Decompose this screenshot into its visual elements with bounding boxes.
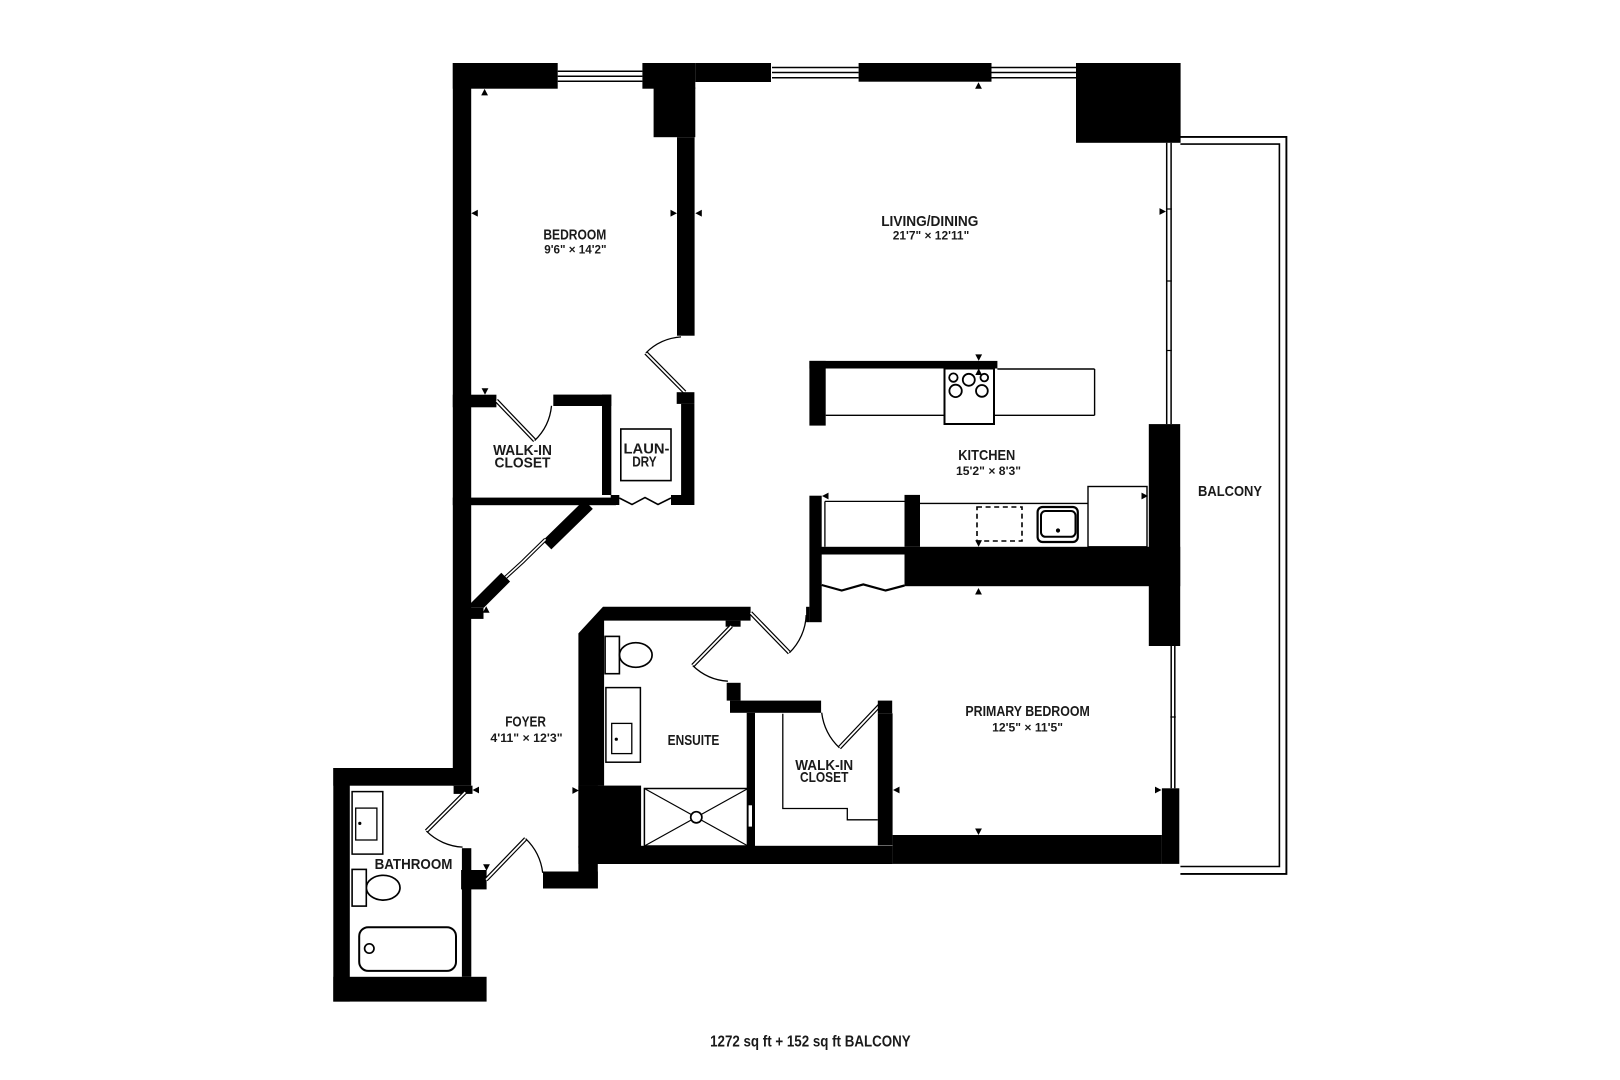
svg-text:BALCONY: BALCONY (1198, 483, 1262, 500)
svg-text:15'2" × 8'3": 15'2" × 8'3" (956, 464, 1021, 478)
svg-text:BATHROOM: BATHROOM (375, 856, 453, 873)
svg-text:4'11" × 12'3": 4'11" × 12'3" (490, 731, 562, 745)
svg-text:12'5" × 11'5": 12'5" × 11'5" (992, 721, 1063, 735)
svg-text:9'6" × 14'2": 9'6" × 14'2" (544, 242, 606, 256)
svg-text:21'7" × 12'11": 21'7" × 12'11" (893, 229, 970, 243)
svg-text:CLOSET: CLOSET (800, 769, 848, 786)
svg-text:FOYER: FOYER (505, 714, 546, 731)
svg-text:KITCHEN: KITCHEN (958, 447, 1015, 464)
svg-text:1272 sq ft + 152 sq ft BALCONY: 1272 sq ft + 152 sq ft BALCONY (710, 1034, 911, 1051)
svg-text:PRIMARY BEDROOM: PRIMARY BEDROOM (965, 703, 1089, 720)
svg-text:CLOSET: CLOSET (495, 455, 551, 472)
svg-text:DRY: DRY (632, 453, 656, 470)
svg-text:ENSUITE: ENSUITE (668, 732, 720, 749)
svg-text:BEDROOM: BEDROOM (543, 227, 606, 244)
